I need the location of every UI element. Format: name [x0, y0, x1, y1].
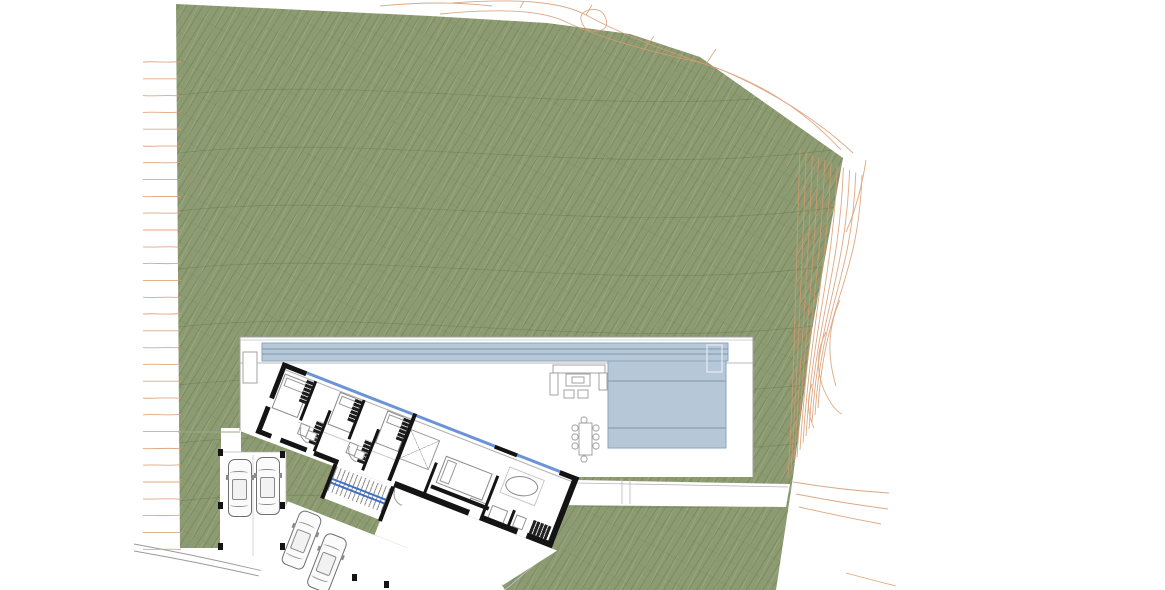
column-post [218, 449, 223, 456]
column-post [280, 502, 285, 509]
terrace-planter [243, 352, 257, 383]
column-post [352, 574, 357, 581]
dining-chair [593, 434, 599, 440]
outdoor-lounge-sofa [564, 390, 574, 398]
dining-chair [572, 425, 578, 431]
site-plan-canvas [0, 0, 1165, 590]
dining-chair [581, 456, 587, 462]
outdoor-lounge-sofa [550, 373, 558, 395]
outdoor-lounge-sofa [599, 373, 607, 390]
column-post [218, 543, 223, 550]
pillow [439, 460, 457, 485]
dining-chair [593, 443, 599, 449]
lap-pool [262, 343, 728, 361]
dining-chair [572, 443, 578, 449]
dining-chair [581, 417, 587, 423]
column-post [280, 451, 285, 458]
outdoor-lounge-sofa [578, 390, 588, 398]
outdoor-lounge-sofa [572, 377, 584, 383]
dining-chair [572, 434, 578, 440]
swimming-pool [608, 361, 726, 448]
dining-chair [593, 425, 599, 431]
dining-table [579, 423, 592, 455]
column-post [384, 581, 389, 588]
car-mirror-l [226, 475, 229, 480]
column-post [280, 543, 285, 550]
column-post [218, 502, 223, 509]
outdoor-lounge-sofa [553, 365, 605, 373]
